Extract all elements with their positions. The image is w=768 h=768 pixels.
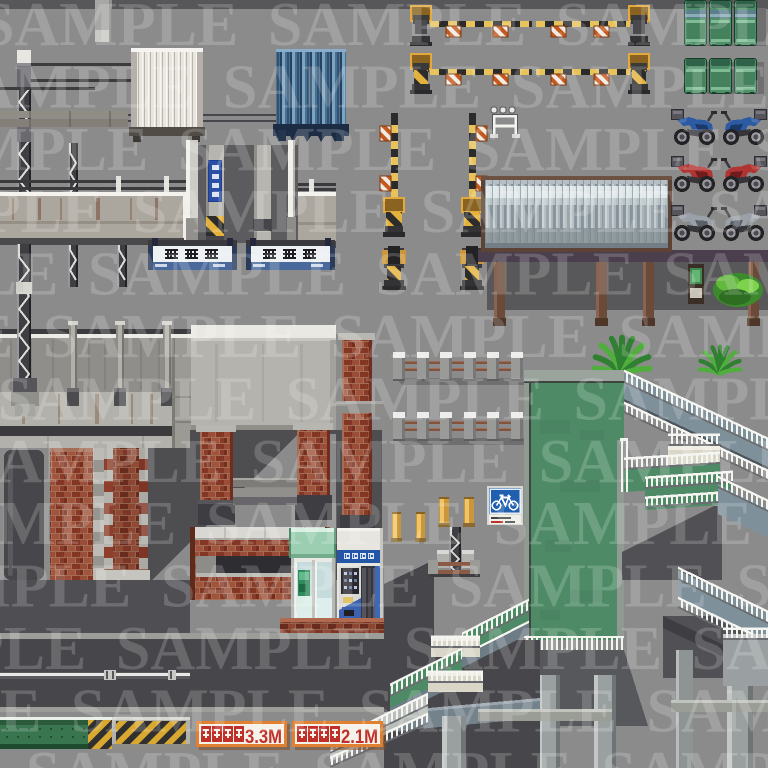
svg-text:SAMPLE SAMPLE SAMPLE SAMPLE: SAMPLE SAMPLE SAMPLE SAMPLE [0, 241, 768, 309]
svg-text:SAMPLE SAMPLE SAMPLE SAMPLE: SAMPLE SAMPLE SAMPLE SAMPLE [0, 178, 768, 246]
svg-text:SAMPLE SAMPLE SAMPLE SAMPLE: SAMPLE SAMPLE SAMPLE SAMPLE [0, 428, 768, 496]
svg-text:SAMPLE SAMPLE SAMPLE SAMPLE: SAMPLE SAMPLE SAMPLE SAMPLE [0, 553, 768, 621]
svg-text:SAMPLE SAMPLE SAMPLE SAMPLE: SAMPLE SAMPLE SAMPLE SAMPLE [0, 615, 768, 683]
svg-text:SAMPLE SAMPLE SAMPLE SAMPLE: SAMPLE SAMPLE SAMPLE SAMPLE [0, 740, 768, 768]
svg-text:SAMPLE SAMPLE SAMPLE SAMPLE: SAMPLE SAMPLE SAMPLE SAMPLE [0, 53, 768, 121]
svg-text:SAMPLE SAMPLE SAMPLE SAMPLE: SAMPLE SAMPLE SAMPLE SAMPLE [0, 490, 768, 558]
svg-text:SAMPLE SAMPLE SAMPLE SAMPLE: SAMPLE SAMPLE SAMPLE SAMPLE [0, 303, 768, 371]
svg-text:SAMPLE SAMPLE SAMPLE SAMPLE: SAMPLE SAMPLE SAMPLE SAMPLE [0, 365, 768, 433]
svg-text:SAMPLE SAMPLE SAMPLE SAMPLE: SAMPLE SAMPLE SAMPLE SAMPLE [0, 116, 768, 184]
svg-text:SAMPLE SAMPLE SAMPLE SAMPLE: SAMPLE SAMPLE SAMPLE SAMPLE [0, 677, 768, 745]
svg-text:SAMPLE SAMPLE SAMPLE SAMPLE: SAMPLE SAMPLE SAMPLE SAMPLE [0, 0, 768, 59]
